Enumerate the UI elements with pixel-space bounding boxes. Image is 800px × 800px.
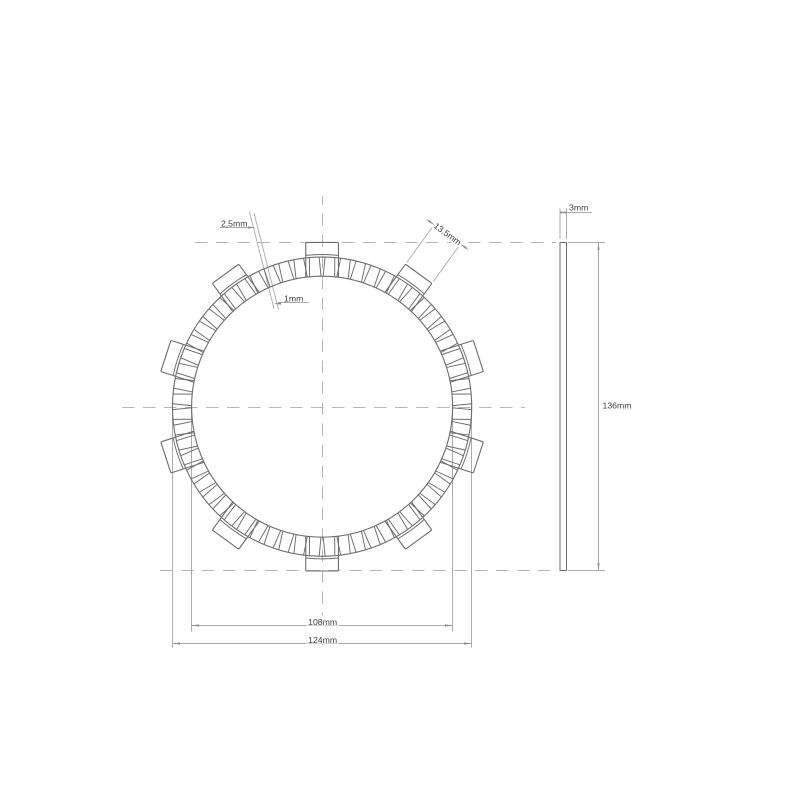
svg-text:136mm: 136mm bbox=[603, 400, 632, 410]
svg-text:3mm: 3mm bbox=[569, 202, 588, 212]
svg-text:124mm: 124mm bbox=[308, 635, 337, 645]
svg-text:1mm: 1mm bbox=[284, 294, 303, 304]
svg-text:108mm: 108mm bbox=[308, 617, 337, 627]
svg-text:2,5mm: 2,5mm bbox=[221, 218, 248, 228]
